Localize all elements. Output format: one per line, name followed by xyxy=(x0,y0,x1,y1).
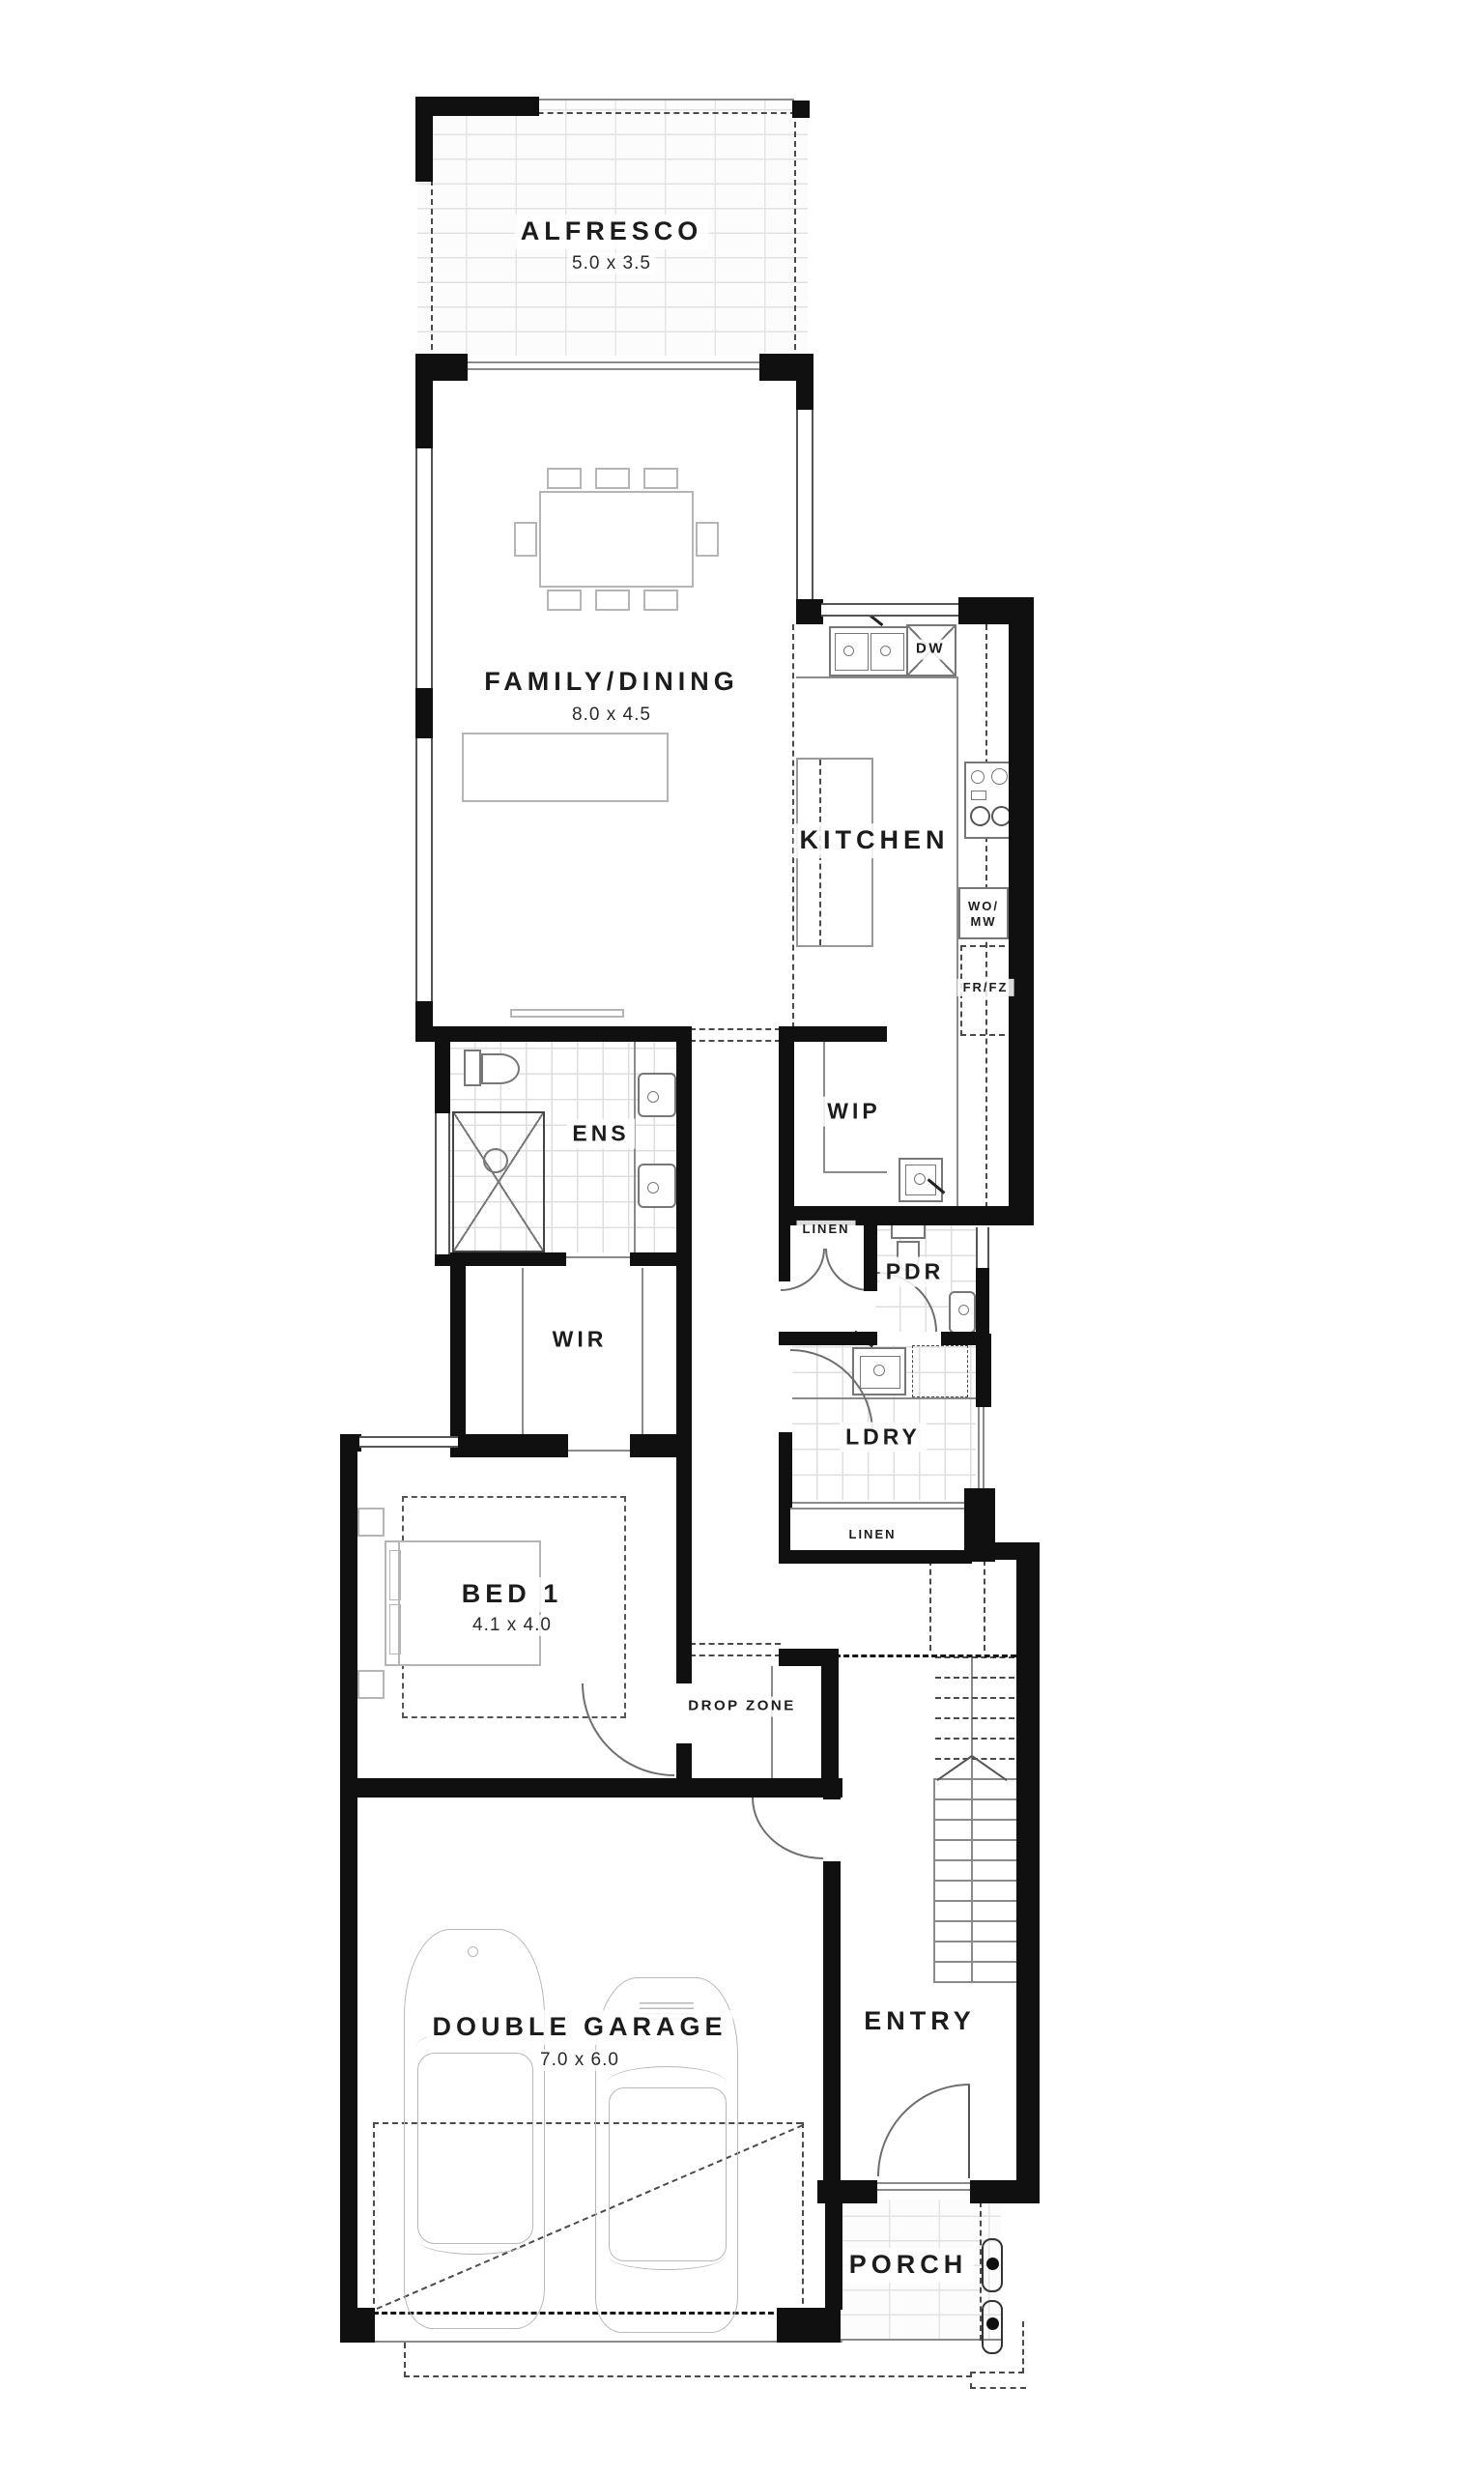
fridge-label: FR/FZ xyxy=(957,979,1014,996)
window xyxy=(415,738,433,1001)
wall-segment xyxy=(676,1268,692,1683)
drop-zone-label: DROP ZONE xyxy=(682,1697,801,1717)
family-dining-label: FAMILY/DINING xyxy=(478,665,745,700)
detail-line xyxy=(933,1859,1016,1861)
dining-chair xyxy=(547,590,582,611)
detail-line xyxy=(933,1981,1016,1983)
detail-line xyxy=(796,676,958,678)
dining-chair xyxy=(643,468,678,489)
dashed-line xyxy=(802,2122,804,2314)
porch-post xyxy=(986,2258,999,2270)
dining-chair xyxy=(643,590,678,611)
family-dining-dim: 8.0 x 4.5 xyxy=(568,705,655,726)
dashed-line xyxy=(935,1717,1014,1719)
wall-segment xyxy=(825,2200,842,2310)
detail-line xyxy=(642,1268,643,1446)
cooktop xyxy=(964,762,1011,839)
wall-segment xyxy=(1009,597,1034,1225)
linen-upper-label: LINEN xyxy=(797,1221,856,1238)
wall-oven-label: WO/ MW xyxy=(962,898,1005,932)
detail-line xyxy=(933,1880,1016,1882)
wall-segment xyxy=(777,2308,841,2343)
tv-unit xyxy=(510,1009,624,1018)
wall-segment xyxy=(450,1252,466,1457)
detail-line xyxy=(933,1941,1016,1942)
detail-line xyxy=(877,2189,970,2191)
wall-segment xyxy=(779,1550,972,1564)
ens-label: ENS xyxy=(566,1119,635,1149)
dashed-line xyxy=(690,1040,781,1042)
kitchen-sink xyxy=(829,626,908,676)
dining-chair xyxy=(595,590,630,611)
powder-basin xyxy=(949,1291,976,1334)
bed1-label: BED 1 xyxy=(456,1577,569,1612)
dashed-line xyxy=(970,2372,1024,2373)
wall-segment xyxy=(779,1026,887,1042)
car xyxy=(404,1929,545,2329)
wall-segment xyxy=(415,686,433,740)
wall-segment xyxy=(340,1434,357,1796)
dining-chair xyxy=(595,468,630,489)
dashed-line xyxy=(935,1697,1014,1699)
wall-segment xyxy=(779,1042,794,1222)
wall-segment xyxy=(415,381,433,450)
detail-line xyxy=(983,1405,985,1498)
vanity-basin xyxy=(638,1164,676,1208)
window xyxy=(435,1113,450,1254)
window xyxy=(821,603,958,617)
vanity-basin xyxy=(638,1073,676,1117)
wall-segment xyxy=(779,1225,790,1281)
toilet xyxy=(464,1050,481,1086)
dashed-line xyxy=(984,1560,985,1651)
dashed-line xyxy=(690,1654,781,1656)
wall-segment xyxy=(415,354,468,381)
detail-line xyxy=(340,2341,842,2343)
wall-segment xyxy=(431,1026,692,1042)
entry-door-swing xyxy=(877,2084,970,2176)
dishwasher-label: DW xyxy=(910,640,951,660)
wall-segment xyxy=(676,1026,692,1268)
wall-segment xyxy=(976,1268,989,1336)
detail-line xyxy=(783,1508,968,1510)
dashed-line xyxy=(690,1643,781,1645)
dining-table xyxy=(539,491,694,588)
wall-segment xyxy=(970,1498,995,1558)
pantry-sink xyxy=(899,1158,943,1202)
bedside-table xyxy=(357,1670,385,1699)
dashed-line xyxy=(404,2375,972,2377)
dining-chair xyxy=(547,468,582,489)
toilet-cistern xyxy=(891,1223,926,1239)
wall-segment xyxy=(630,1434,692,1452)
detail-line xyxy=(568,1450,630,1452)
wall-segment xyxy=(340,2308,375,2343)
dining-chair xyxy=(696,522,719,557)
porch-post xyxy=(986,2317,999,2330)
detail-line xyxy=(933,1961,1016,1963)
wall-segment xyxy=(976,1334,991,1407)
washing-machine-box xyxy=(912,1345,968,1397)
detail-line xyxy=(522,1268,524,1446)
detail-line xyxy=(823,1171,887,1173)
detail-line xyxy=(978,1405,980,1498)
toilet-bowl xyxy=(481,1053,520,1084)
detail-line xyxy=(771,1666,773,1790)
dashed-opening xyxy=(835,1654,1016,1657)
garage-door-swing xyxy=(752,1798,823,1859)
porch-label: PORCH xyxy=(843,2248,974,2283)
linen-lower-label: LINEN xyxy=(843,1526,902,1543)
alfresco-label: ALFRESCO xyxy=(515,215,709,249)
wall-segment xyxy=(864,1225,877,1291)
detail-line xyxy=(956,676,958,1208)
dashed-line xyxy=(690,1028,781,1030)
dashed-line xyxy=(929,1560,931,1651)
wall-segment xyxy=(792,101,810,118)
dashed-line xyxy=(970,2387,1026,2389)
alfresco-dim: 5.0 x 3.5 xyxy=(568,253,655,274)
garage-dim: 7.0 x 6.0 xyxy=(536,2050,623,2071)
bed1-dim: 4.1 x 4.0 xyxy=(469,1615,556,1636)
detail-line xyxy=(841,2339,1003,2341)
entry-label: ENTRY xyxy=(858,2004,982,2039)
wall-segment xyxy=(1016,1542,1040,2201)
wall-segment xyxy=(340,1778,842,1798)
wall-segment xyxy=(941,1332,976,1345)
detail-line xyxy=(933,1819,1016,1821)
window xyxy=(359,1436,458,1448)
dashed-line xyxy=(373,2122,375,2314)
wall-segment xyxy=(415,97,433,182)
dashed-line xyxy=(935,1677,1014,1679)
detail-line xyxy=(466,361,761,363)
dashed-line xyxy=(404,2343,406,2377)
bed1-door-swing xyxy=(582,1683,674,1776)
window xyxy=(796,410,813,599)
bedside-table xyxy=(357,1508,385,1537)
dining-chair xyxy=(514,522,537,557)
detail-line xyxy=(466,368,761,370)
detail-line xyxy=(933,1900,1016,1902)
wall-segment xyxy=(456,1434,568,1452)
wall-segment xyxy=(779,1332,877,1345)
sofa xyxy=(462,733,669,802)
wall-segment xyxy=(796,381,813,412)
shower-rose-icon xyxy=(483,1148,508,1173)
detail-line xyxy=(566,1256,630,1258)
wall-segment xyxy=(779,1432,792,1508)
wall-segment xyxy=(821,1649,839,1796)
garage-label: DOUBLE GARAGE xyxy=(426,2010,732,2045)
kitchen-label: KITCHEN xyxy=(794,823,956,858)
window xyxy=(415,448,433,688)
detail-line xyxy=(933,1920,1016,1922)
dashed-line xyxy=(970,2372,972,2389)
wall-segment xyxy=(796,599,823,624)
dashed-line xyxy=(794,112,796,360)
detail-line xyxy=(933,1839,1016,1841)
wall-segment xyxy=(415,97,539,116)
shower xyxy=(452,1111,545,1252)
wip-label: WIP xyxy=(821,1097,886,1127)
dashed-line xyxy=(935,1738,1014,1740)
pdr-label: PDR xyxy=(880,1257,951,1287)
wall-segment xyxy=(630,1252,692,1266)
dashed-line xyxy=(1022,2321,1024,2373)
detail-line xyxy=(877,2182,970,2184)
window xyxy=(976,1227,989,1268)
wall-segment xyxy=(970,2180,1040,2203)
detail-line xyxy=(783,1502,968,1504)
ldry-label: LDRY xyxy=(840,1423,927,1453)
detail-line xyxy=(933,1798,1016,1800)
wall-segment xyxy=(759,354,813,381)
wall-segment xyxy=(435,1042,450,1115)
wir-label: WIR xyxy=(547,1325,614,1355)
wall-segment xyxy=(340,1796,357,2343)
floor-plan: ALFRESCO 5.0 x 3.5 FAMILY/DINING 8.0 x 4… xyxy=(0,0,1484,2474)
wall-segment xyxy=(823,1861,841,2180)
